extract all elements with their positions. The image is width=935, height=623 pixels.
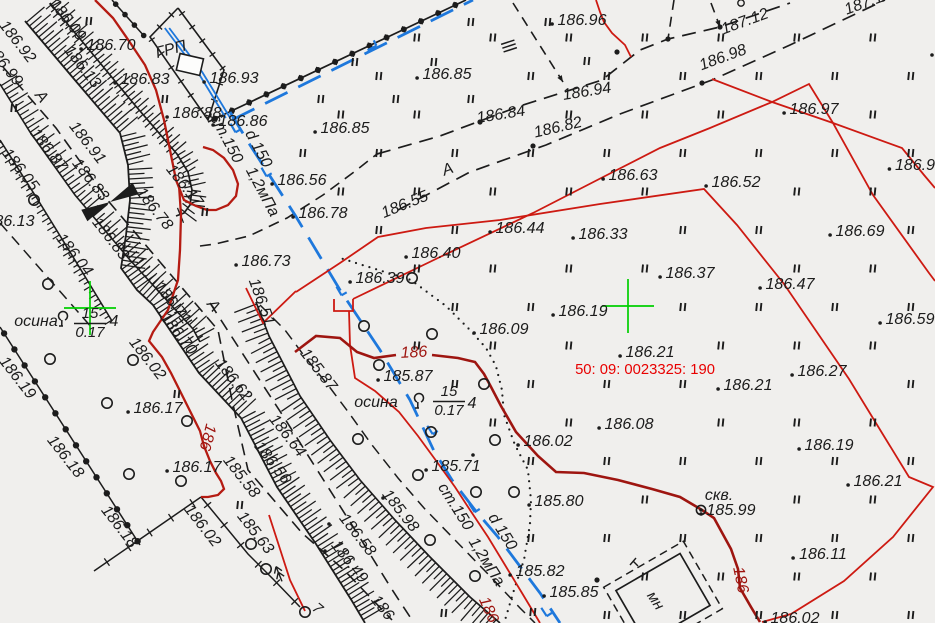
svg-text:186.27: 186.27: [798, 363, 848, 380]
svg-text:186.13: 186.13: [0, 213, 35, 230]
svg-text:0.17: 0.17: [75, 324, 105, 341]
svg-text:186.78: 186.78: [299, 205, 348, 222]
svg-text:186.83: 186.83: [121, 71, 170, 88]
svg-text:186.69: 186.69: [836, 223, 885, 240]
svg-text:186.19: 186.19: [559, 303, 608, 320]
svg-text:186.02: 186.02: [524, 433, 573, 450]
svg-text:186.63: 186.63: [609, 167, 658, 184]
svg-text:185.85: 185.85: [550, 584, 599, 601]
svg-text:186.96: 186.96: [558, 12, 607, 29]
svg-text:186.85: 186.85: [423, 66, 472, 83]
svg-text:186.44: 186.44: [496, 220, 545, 237]
svg-text:185.87: 185.87: [384, 368, 434, 385]
svg-text:осина: осина: [354, 394, 398, 411]
svg-text:186.93: 186.93: [210, 70, 259, 87]
svg-text:осина: осина: [14, 313, 58, 330]
svg-text:186.47: 186.47: [766, 276, 816, 293]
svg-text:186.37: 186.37: [666, 265, 716, 282]
svg-text:186.09: 186.09: [480, 321, 529, 338]
svg-text:186.56: 186.56: [278, 172, 327, 189]
svg-text:186.21: 186.21: [724, 377, 773, 394]
svg-text:4: 4: [468, 395, 477, 412]
svg-text:4: 4: [110, 313, 119, 330]
svg-text:185.80: 185.80: [535, 493, 584, 510]
svg-text:186.59: 186.59: [886, 311, 935, 328]
svg-text:186.9: 186.9: [895, 157, 935, 174]
svg-text:185.71: 185.71: [432, 458, 481, 475]
svg-text:186.21: 186.21: [854, 473, 903, 490]
svg-text:0.17: 0.17: [434, 402, 464, 419]
svg-text:15: 15: [82, 305, 99, 322]
svg-text:186.21: 186.21: [626, 344, 675, 361]
svg-text:186.40: 186.40: [412, 245, 461, 262]
svg-text:186.52: 186.52: [712, 174, 761, 191]
svg-text:186.39: 186.39: [356, 270, 405, 287]
svg-text:185.99: 185.99: [707, 502, 756, 519]
svg-text:15: 15: [441, 383, 458, 400]
svg-text:скв.: скв.: [705, 487, 733, 504]
svg-text:186.85: 186.85: [321, 120, 370, 137]
svg-text:186.17: 186.17: [134, 400, 184, 417]
svg-text:186.02: 186.02: [771, 610, 820, 623]
svg-text:186.70: 186.70: [87, 37, 136, 54]
svg-text:186.17: 186.17: [173, 459, 223, 476]
svg-text:186.33: 186.33: [579, 226, 628, 243]
svg-text:186.73: 186.73: [242, 253, 291, 270]
svg-text:186.11: 186.11: [799, 546, 847, 563]
svg-text:186.19: 186.19: [805, 437, 854, 454]
svg-text:50: 09: 0023325: 190: 50: 09: 0023325: 190: [575, 362, 715, 378]
svg-text:186.97: 186.97: [790, 101, 840, 118]
svg-text:185.82: 185.82: [516, 563, 565, 580]
svg-text:186.08: 186.08: [605, 416, 654, 433]
